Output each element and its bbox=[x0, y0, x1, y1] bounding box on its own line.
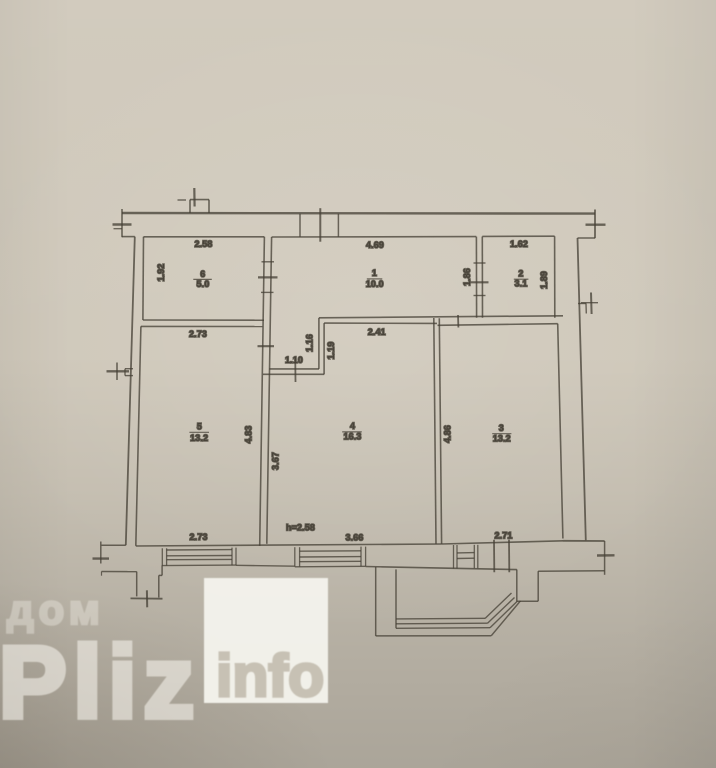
svg-text:3.67: 3.67 bbox=[271, 452, 281, 470]
svg-text:2.41: 2.41 bbox=[368, 327, 386, 337]
svg-text:4.69: 4.69 bbox=[366, 240, 384, 250]
svg-text:3.1: 3.1 bbox=[515, 279, 528, 289]
svg-text:2.73: 2.73 bbox=[190, 532, 208, 542]
svg-text:1.92: 1.92 bbox=[156, 263, 166, 281]
svg-text:1.62: 1.62 bbox=[510, 239, 528, 249]
svg-text:h=2.58: h=2.58 bbox=[286, 523, 315, 533]
svg-text:1: 1 bbox=[372, 268, 377, 278]
svg-text:2.71: 2.71 bbox=[494, 531, 512, 541]
svg-text:10.0: 10.0 bbox=[366, 279, 384, 289]
svg-text:1.19: 1.19 bbox=[326, 341, 336, 359]
svg-text:2.58: 2.58 bbox=[194, 239, 212, 249]
svg-text:13.2: 13.2 bbox=[190, 433, 208, 443]
svg-text:3.66: 3.66 bbox=[345, 532, 363, 542]
svg-text:16.3: 16.3 bbox=[343, 432, 361, 442]
svg-text:4.83: 4.83 bbox=[244, 425, 254, 443]
svg-text:1.89: 1.89 bbox=[539, 271, 549, 289]
svg-text:5: 5 bbox=[197, 422, 202, 432]
svg-text:2.73: 2.73 bbox=[189, 329, 207, 339]
svg-text:3: 3 bbox=[499, 423, 504, 433]
svg-text:2: 2 bbox=[518, 269, 523, 279]
svg-text:6: 6 bbox=[200, 269, 205, 279]
svg-text:1.16: 1.16 bbox=[305, 334, 315, 352]
svg-text:5.0: 5.0 bbox=[197, 279, 210, 289]
svg-text:1.10: 1.10 bbox=[285, 355, 303, 365]
svg-text:4.86: 4.86 bbox=[443, 425, 453, 443]
svg-text:4: 4 bbox=[350, 421, 355, 431]
svg-text:13.2: 13.2 bbox=[493, 433, 511, 443]
